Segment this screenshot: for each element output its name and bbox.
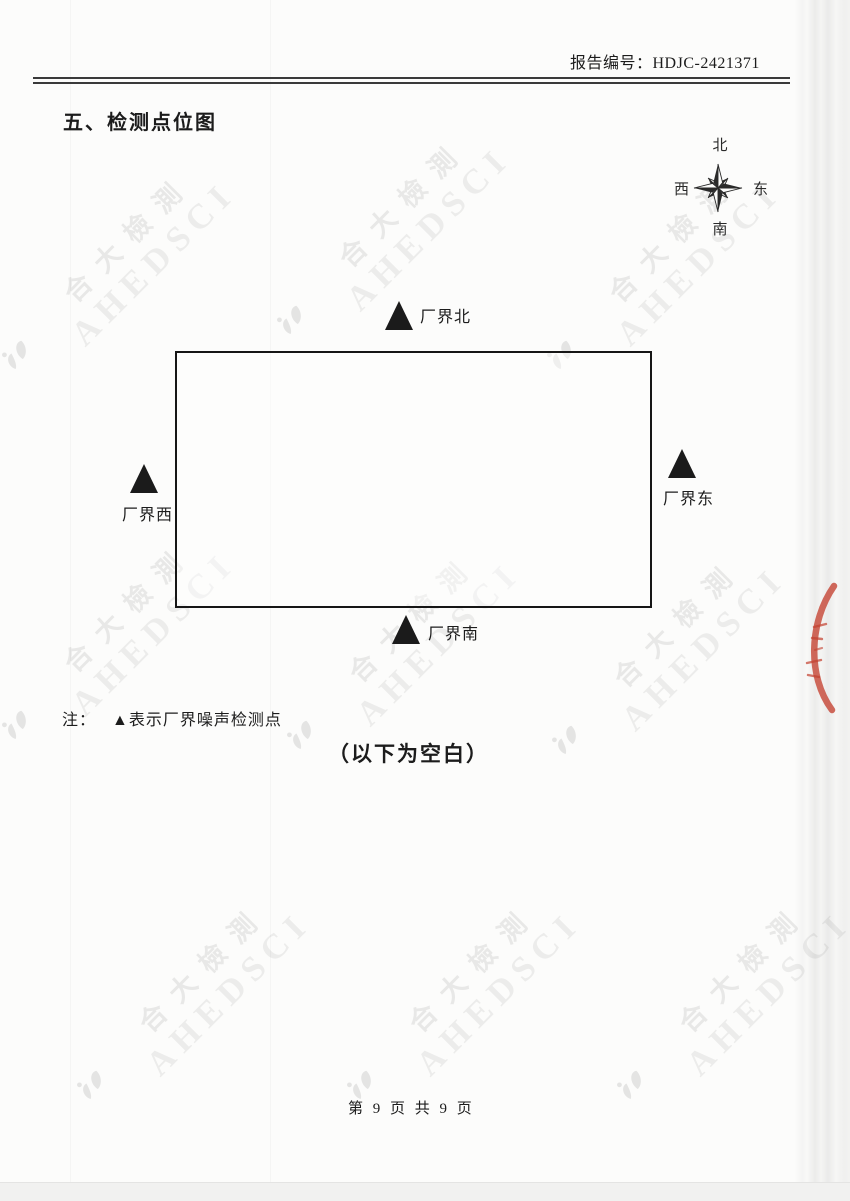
marker-north: 厂界北: [385, 301, 413, 330]
report-number: 报告编号：HDJC-2421371: [570, 49, 760, 73]
page-indicator: 第 9 页 共 9 页: [348, 1097, 475, 1118]
compass-north-label: 北: [712, 134, 727, 155]
watermark-logo-icon: [0, 704, 45, 753]
legend-note-prefix: 注：: [62, 712, 96, 729]
compass-star-icon: [690, 160, 746, 216]
compass-east-label: 东: [753, 178, 768, 199]
marker-north-label: 厂界北: [420, 303, 471, 327]
watermark-logo-icon: [546, 719, 595, 768]
watermark-cjk-text: 合大檢測: [357, 852, 591, 1086]
triangle-marker-icon: [130, 464, 158, 493]
compass-west-label: 西: [674, 178, 689, 199]
watermark-cjk-text: 合大檢測: [12, 122, 246, 356]
watermark-cjk-text: 合大檢測: [287, 87, 521, 321]
legend-note-text: ▲表示厂界噪声检测点: [112, 712, 282, 729]
triangle-marker-icon: [392, 615, 420, 644]
watermark-cjk-text: 合大檢測: [87, 852, 321, 1086]
watermark-latin-text: AHEDSCI: [108, 873, 349, 1114]
compass-south-label: 南: [712, 218, 727, 239]
marker-south-label: 厂界南: [428, 620, 479, 644]
section-title: 五、检测点位图: [63, 106, 217, 135]
site-boundary-rectangle: [175, 351, 652, 608]
marker-east: 厂界东: [668, 449, 696, 478]
watermark: 合大檢測 AHEDSCI: [285, 85, 535, 385]
watermark-latin-text: AHEDSCI: [378, 873, 619, 1114]
watermark-logo-icon: [71, 1064, 120, 1113]
marker-west-label: 厂界西: [122, 501, 173, 525]
triangle-marker-icon: [385, 301, 413, 330]
red-seal-fragment-icon: [792, 580, 844, 715]
scan-fold-line: [70, 0, 71, 1183]
watermark-logo-icon: [281, 714, 330, 763]
watermark-logo-icon: [611, 1064, 660, 1113]
marker-east-label: 厂界东: [663, 485, 714, 509]
watermark: 合大檢測 AHEDSCI: [85, 850, 335, 1150]
blank-below-note: （以下为空白）: [328, 738, 489, 768]
document-page: 合大檢測 AHEDSCI 合大檢測 AHEDSCI 合大檢測 AHEDSCI 合…: [0, 0, 850, 1201]
compass-rose: 北 南 西 东: [670, 136, 770, 240]
watermark-logo-icon: [271, 299, 320, 348]
watermark-logo-icon: [0, 334, 45, 383]
legend-note: 注：▲表示厂界噪声检测点: [62, 706, 282, 730]
marker-south: 厂界南: [392, 615, 420, 644]
scan-edge-bottom: [0, 1182, 850, 1201]
triangle-marker-icon: [668, 449, 696, 478]
header-double-rule: [33, 77, 790, 84]
marker-west: 厂界西: [130, 464, 158, 493]
